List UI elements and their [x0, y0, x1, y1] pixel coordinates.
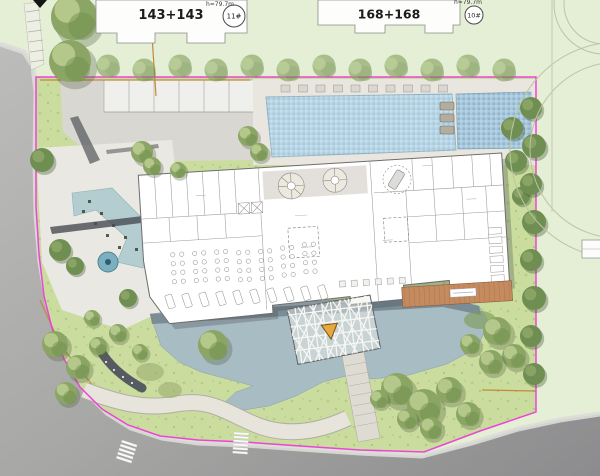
- pool-platforms: [440, 102, 454, 134]
- unit-badge-11-text: 11#: [227, 13, 242, 21]
- unit-badge-10-text: 10#: [467, 12, 481, 20]
- site-plan: 143+143 168+168 11# 10# h=79.7m h=79.7m: [0, 0, 600, 476]
- site-plan-canvas: 143+143 168+168 11# 10# h=79.7m h=79.7m: [0, 0, 600, 476]
- parking-stalls: [104, 80, 254, 112]
- height-annotation-10: h=79.7m: [454, 0, 482, 6]
- building-11-label: 143+143: [138, 8, 203, 23]
- swimming-pool: [266, 94, 456, 157]
- fountain: [98, 252, 118, 272]
- height-annotation-11: h=79.7m: [206, 1, 234, 8]
- neighbor-building: [582, 240, 600, 258]
- building-10-label: 168+168: [358, 7, 421, 22]
